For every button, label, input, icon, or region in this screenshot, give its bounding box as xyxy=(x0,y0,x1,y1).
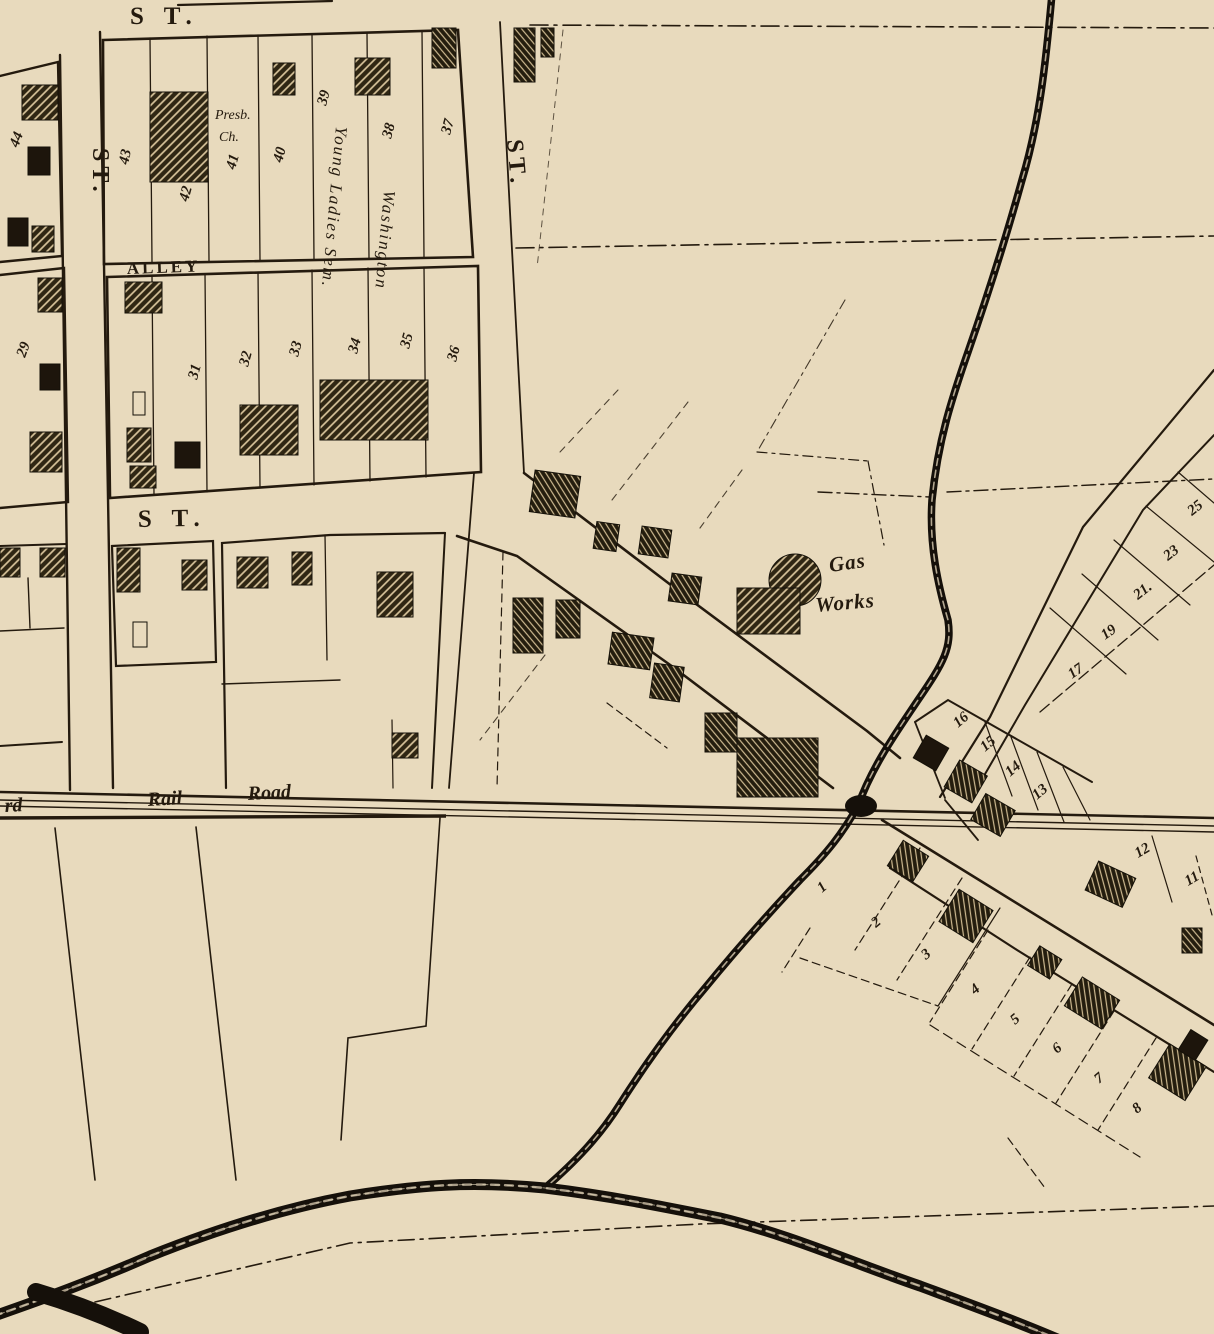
building xyxy=(182,560,207,590)
building xyxy=(292,552,312,585)
plat-map-canvas: S T.S T.ST.ST.ALLEYrdRailRoadGasWorksPre… xyxy=(0,0,1214,1334)
building xyxy=(737,738,818,797)
building xyxy=(0,548,20,577)
building xyxy=(650,663,685,702)
building xyxy=(432,28,456,68)
presb-church-label: Presb. xyxy=(214,108,251,123)
stream-road-crossing xyxy=(845,795,877,817)
building xyxy=(541,28,554,57)
street-label-left-vertical: ST. xyxy=(87,148,113,197)
building xyxy=(127,428,151,462)
railroad-label-road: Road xyxy=(246,781,292,805)
building xyxy=(30,432,62,472)
presb-church-label: Ch. xyxy=(219,130,239,145)
building xyxy=(22,85,58,120)
building xyxy=(1182,928,1202,953)
building xyxy=(668,573,702,605)
building xyxy=(513,598,543,653)
building xyxy=(392,733,418,758)
street-label-top: S T. xyxy=(130,3,199,30)
building xyxy=(240,405,298,455)
map-sheet: S T.S T.ST.ST.ALLEYrdRailRoadGasWorksPre… xyxy=(0,0,1214,1334)
building-presb-church xyxy=(150,92,208,182)
building xyxy=(130,466,156,488)
building xyxy=(705,713,737,752)
building xyxy=(638,526,672,558)
building xyxy=(32,226,54,252)
building xyxy=(125,282,162,313)
street-label-diagonal: ST. xyxy=(501,138,531,189)
building xyxy=(608,632,654,670)
building xyxy=(273,63,295,95)
building xyxy=(529,470,580,518)
building-gas-works xyxy=(737,588,800,634)
railroad-label-rail: Rail xyxy=(146,787,183,811)
gas-works-label: Gas xyxy=(827,548,867,577)
building xyxy=(40,548,65,577)
building xyxy=(237,557,268,588)
street-label-mid: S T. xyxy=(138,505,207,533)
building xyxy=(40,364,60,390)
building xyxy=(8,218,28,246)
building xyxy=(117,548,140,592)
building xyxy=(355,58,390,95)
alley-label: ALLEY xyxy=(126,256,200,278)
building xyxy=(175,442,200,468)
railroad-label-partial: rd xyxy=(4,794,24,817)
building xyxy=(593,522,620,552)
building-seminary xyxy=(320,380,428,440)
building xyxy=(514,28,535,82)
building xyxy=(556,600,580,638)
building xyxy=(28,147,50,175)
building xyxy=(377,572,413,617)
building xyxy=(38,278,62,312)
